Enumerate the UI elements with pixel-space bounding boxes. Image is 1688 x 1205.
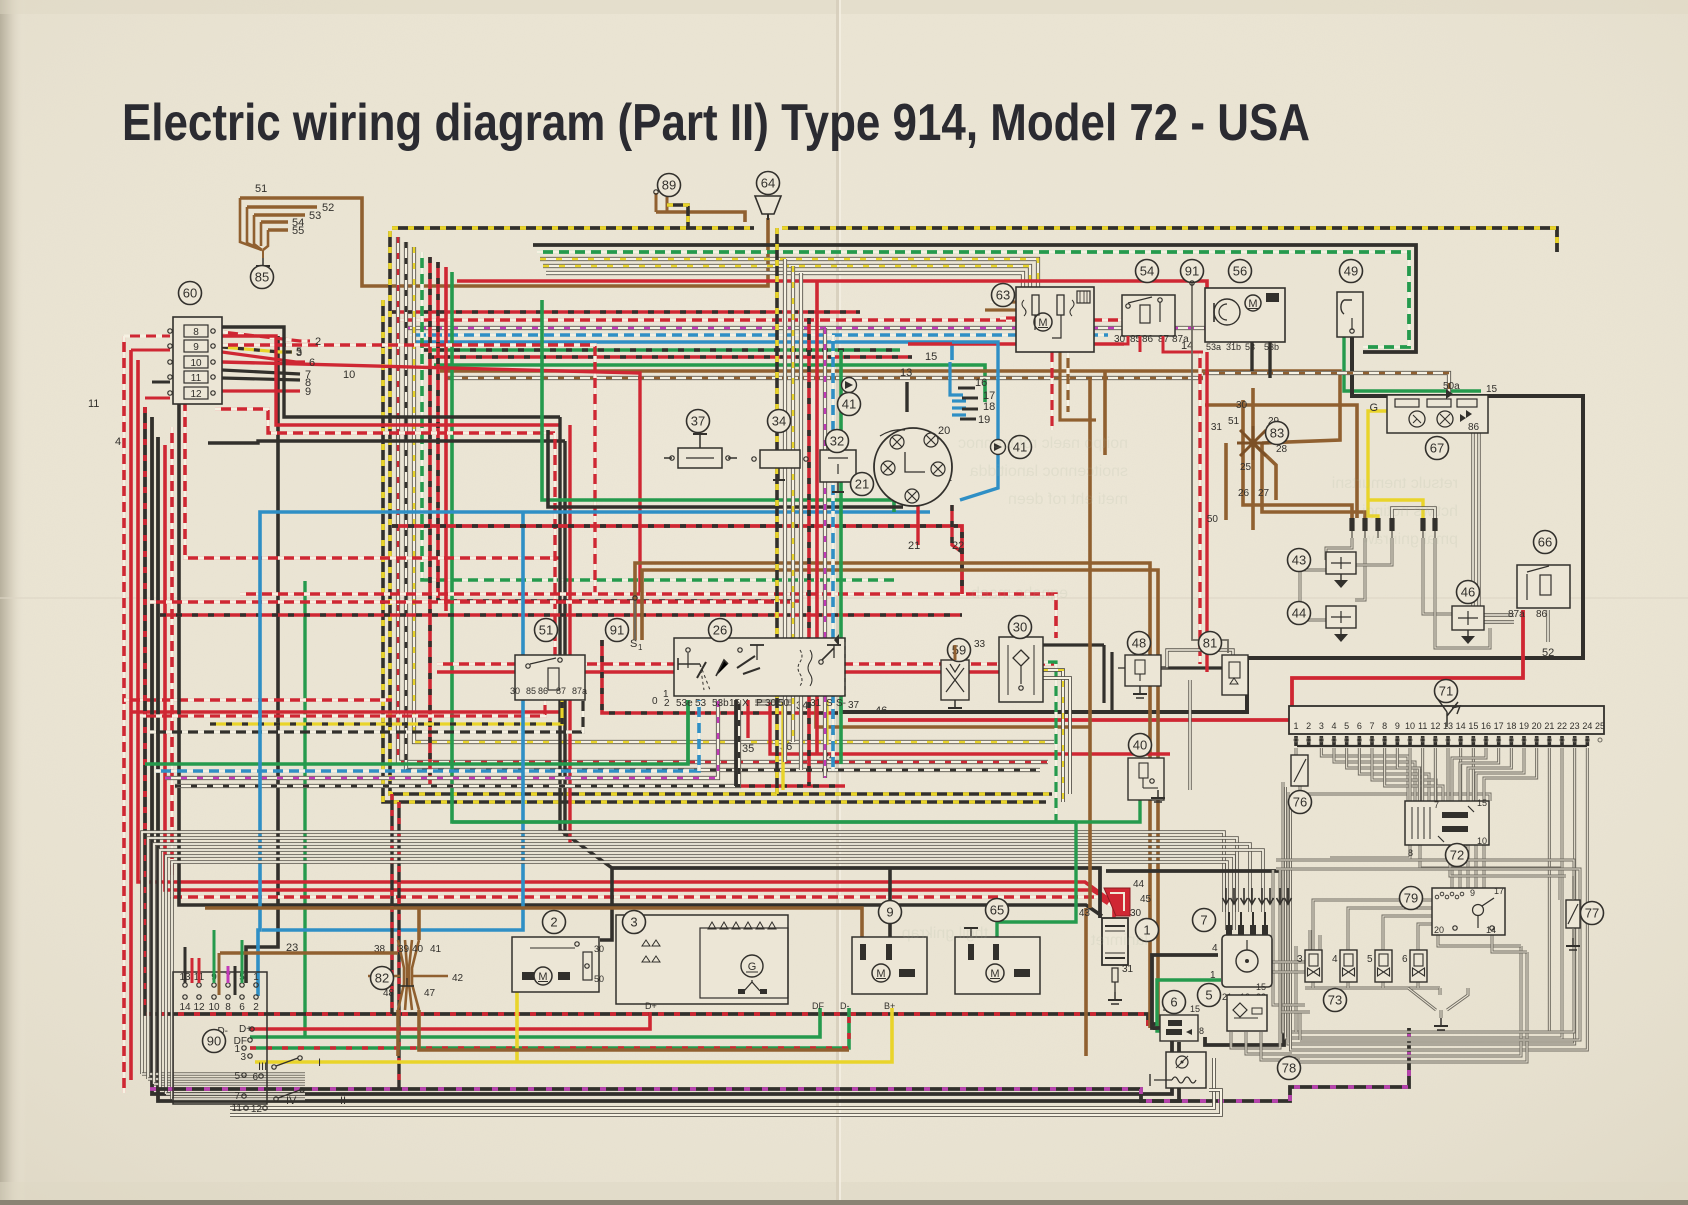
svg-text:15: 15 [1486,384,1498,395]
svg-text:12: 12 [193,1002,205,1013]
svg-text:37: 37 [691,414,705,429]
svg-text:31: 31 [810,698,822,709]
svg-text:86: 86 [1468,422,1480,433]
svg-text:7: 7 [1200,913,1207,928]
svg-text:6: 6 [1357,721,1362,731]
svg-text:25: 25 [1240,462,1252,473]
svg-text:51: 51 [255,183,267,195]
svg-text:30: 30 [594,944,604,954]
svg-text:DF: DF [812,1001,824,1011]
svg-text:53: 53 [309,210,321,222]
svg-text:6: 6 [252,1072,258,1083]
svg-text:67: 67 [1430,441,1444,456]
svg-text:22: 22 [1557,721,1567,731]
svg-text:31: 31 [1122,964,1134,975]
svg-text:28: 28 [1276,444,1288,455]
svg-text:5: 5 [234,1071,240,1082]
svg-text:18: 18 [1506,721,1516,731]
svg-text:26: 26 [1238,488,1250,499]
svg-text:64: 64 [761,176,775,191]
svg-text:53a: 53a [1206,342,1221,352]
svg-text:6: 6 [1402,954,1408,965]
svg-text:32: 32 [830,434,844,449]
svg-text:10: 10 [1405,721,1415,731]
svg-text:12: 12 [190,389,202,400]
svg-text:51: 51 [1228,416,1240,427]
svg-text:40: 40 [1133,738,1147,753]
svg-text:87a: 87a [1172,334,1189,345]
svg-text:5: 5 [1205,988,1212,1003]
svg-text:7: 7 [234,1091,240,1102]
svg-text:52: 52 [1542,647,1554,659]
svg-text:81: 81 [1203,636,1217,651]
svg-text:91: 91 [1185,264,1199,279]
svg-text:25: 25 [1595,721,1605,731]
svg-text:87a: 87a [572,686,587,696]
svg-text:0: 0 [652,696,658,707]
svg-text:9: 9 [193,342,199,353]
svg-text:50: 50 [1207,514,1219,525]
svg-text:3: 3 [1297,954,1303,965]
svg-text:91: 91 [610,623,624,638]
svg-text:2: 2 [550,915,557,930]
svg-text:3: 3 [630,915,637,930]
svg-text:19: 19 [978,414,990,426]
svg-text:6: 6 [309,357,315,369]
svg-text:56: 56 [1233,264,1247,279]
svg-text:53e: 53e [676,698,693,709]
svg-text:5: 5 [1367,954,1373,965]
svg-text:63: 63 [996,288,1010,303]
svg-text:11: 11 [191,373,202,384]
svg-text:86: 86 [538,686,548,696]
svg-text:hctiws notingi: hctiws notingi [1362,503,1458,520]
svg-text:G: G [1369,402,1378,414]
svg-text:30: 30 [765,698,777,709]
svg-text:D+: D+ [645,1001,657,1011]
svg-text:3: 3 [240,1052,246,1063]
svg-text:53b: 53b [712,698,729,709]
svg-text:8: 8 [193,327,199,338]
svg-text:11: 11 [232,1103,243,1114]
svg-text:Electric wiring diagram (Part: Electric wiring diagram (Part II) Type 9… [122,94,1310,152]
svg-text:14: 14 [1456,721,1466,731]
svg-text:8: 8 [1408,848,1413,858]
svg-text:4: 4 [1332,954,1338,965]
svg-text:34: 34 [772,414,786,429]
svg-text:4: 4 [1212,943,1218,954]
svg-text:15: 15 [1256,982,1266,992]
svg-text:10: 10 [1477,836,1487,846]
svg-text:49: 49 [1344,264,1358,279]
svg-text:11: 11 [88,398,99,410]
svg-text:S-: S- [836,698,846,709]
svg-text:27: 27 [1258,488,1270,499]
svg-text:51: 51 [539,623,553,638]
svg-text:53: 53 [695,698,707,709]
svg-text:39: 39 [398,944,410,955]
svg-text:35: 35 [742,743,754,755]
svg-text:23: 23 [1570,721,1580,731]
svg-text:15: 15 [925,351,937,363]
svg-text:B+: B+ [884,1001,895,1011]
svg-text:IV: IV [286,1095,297,1107]
svg-text:90: 90 [207,1034,221,1049]
svg-text:30: 30 [510,686,520,696]
svg-text:50: 50 [594,974,604,984]
svg-text:20: 20 [938,425,950,437]
svg-text:10: 10 [208,1002,220,1013]
svg-text:3: 3 [1319,721,1324,731]
svg-text:8: 8 [1382,721,1387,731]
svg-text:85: 85 [526,686,536,696]
svg-text:II: II [340,1095,346,1107]
svg-text:P: P [756,698,763,709]
svg-text:14: 14 [179,1002,191,1013]
svg-text:55: 55 [292,225,304,237]
svg-text:18: 18 [983,401,995,413]
svg-text:7: 7 [1369,721,1374,731]
svg-text:21: 21 [1544,721,1554,731]
svg-text:19: 19 [1519,721,1529,731]
svg-text:8: 8 [1199,1026,1204,1036]
svg-text:42: 42 [452,973,464,984]
svg-text:2: 2 [315,336,321,348]
svg-text:89: 89 [662,178,676,193]
svg-text:12: 12 [1430,721,1440,731]
svg-text:III: III [258,1061,267,1073]
svg-text:66: 66 [1538,535,1552,550]
svg-text:87a: 87a [1508,609,1525,620]
svg-text:retsulc tnemurtsni: retsulc tnemurtsni [1332,475,1458,492]
svg-text:30: 30 [1130,908,1142,919]
svg-text:G: G [748,961,757,973]
svg-text:87: 87 [556,686,566,696]
svg-text:2: 2 [253,1002,259,1013]
svg-text:1: 1 [663,689,669,700]
svg-text:1: 1 [1293,721,1298,731]
svg-text:13: 13 [900,367,912,379]
svg-text:41: 41 [842,397,856,412]
svg-text:50: 50 [778,698,790,709]
svg-text:21: 21 [855,477,869,492]
svg-text:17: 17 [1494,886,1504,896]
svg-text:15: 15 [1468,721,1478,731]
svg-text:73: 73 [1328,993,1342,1008]
svg-text:S: S [826,698,833,709]
svg-text:3: 3 [296,347,302,359]
svg-text:46: 46 [875,705,887,717]
svg-text:86: 86 [1536,609,1548,620]
svg-text:S: S [630,638,637,650]
svg-text:44: 44 [1133,879,1145,890]
svg-text:53: 53 [1245,342,1255,352]
svg-text:I: I [318,1057,321,1069]
svg-text:pmal gninraw: pmal gninraw [1362,531,1458,548]
svg-text:1: 1 [253,972,259,983]
svg-text:47: 47 [424,988,436,999]
svg-text:thgil gnikrap: thgil gnikrap [902,925,988,942]
svg-text:40: 40 [412,944,424,955]
svg-text:9: 9 [1470,888,1475,898]
svg-text:8: 8 [225,1002,231,1013]
svg-text:6: 6 [1170,995,1177,1010]
svg-text:85: 85 [255,270,269,285]
svg-text:1: 1 [638,643,643,652]
svg-text:meti eht rof deen: meti eht rof deen [1008,491,1128,508]
svg-text:21: 21 [908,540,920,552]
svg-text:D-: D- [840,1001,850,1011]
svg-text:11: 11 [1418,721,1427,731]
svg-text:15: 15 [1477,798,1487,808]
svg-text:snoitcennoc lanoitidda: snoitcennoc lanoitidda [970,463,1128,480]
svg-text:41: 41 [430,944,442,955]
svg-text:71: 71 [1439,684,1453,699]
svg-text:33: 33 [974,639,986,650]
svg-text:17: 17 [1494,721,1504,731]
svg-text:76: 76 [1293,795,1307,810]
svg-text:65: 65 [990,903,1004,918]
svg-text:4: 4 [1331,721,1336,731]
svg-text:54: 54 [1140,264,1154,279]
svg-text:78: 78 [1282,1061,1296,1076]
svg-text:43: 43 [1079,908,1091,919]
svg-text:22: 22 [952,540,964,552]
svg-text:15: 15 [729,698,741,709]
svg-text:44: 44 [1292,606,1306,621]
svg-text:37: 37 [848,700,860,711]
svg-text:46: 46 [1461,585,1475,600]
svg-text:30: 30 [1114,334,1126,345]
svg-text:30: 30 [1236,400,1248,411]
svg-text:16: 16 [975,377,987,389]
svg-text:30: 30 [1013,620,1027,635]
svg-text:9: 9 [1395,721,1400,731]
svg-text:5: 5 [1344,721,1349,731]
svg-text:26: 26 [713,623,727,638]
svg-text:72: 72 [1450,848,1464,863]
svg-text:9: 9 [886,905,893,920]
svg-text:31: 31 [1211,422,1223,433]
svg-text:9: 9 [305,386,311,398]
svg-text:12: 12 [251,1104,263,1115]
svg-text:1: 1 [1210,970,1216,981]
svg-text:50a: 50a [1443,381,1460,392]
svg-text:31b: 31b [1226,342,1241,352]
svg-text:4: 4 [115,436,121,448]
svg-text:lanimret: lanimret [1091,932,1148,949]
svg-text:52: 52 [322,202,334,214]
svg-text:10: 10 [343,369,355,381]
svg-text:2: 2 [1306,721,1311,731]
svg-text:1: 1 [1152,1022,1157,1032]
svg-text:83: 83 [1270,426,1284,441]
svg-text:6: 6 [239,1002,245,1013]
svg-text:82: 82 [375,971,389,986]
svg-text:77: 77 [1585,906,1599,921]
svg-text:10: 10 [190,358,202,369]
svg-text:43: 43 [1292,553,1306,568]
svg-text:noitpo naelc rof tcennoc: noitpo naelc rof tcennoc [958,435,1128,452]
svg-text:86: 86 [1142,334,1154,345]
svg-text:13: 13 [1443,721,1453,731]
svg-text:7: 7 [1434,800,1439,810]
svg-text:79: 79 [1404,891,1418,906]
svg-text:24: 24 [1582,721,1592,731]
svg-text:48: 48 [1132,636,1146,651]
svg-text:53b: 53b [1264,342,1279,352]
svg-text:16: 16 [1481,721,1491,731]
svg-text:X: X [742,698,749,709]
svg-text:45: 45 [1140,894,1152,905]
svg-text:20: 20 [1434,925,1444,935]
svg-text:20: 20 [1532,721,1542,731]
svg-text:60: 60 [183,286,197,301]
svg-text:egnahc maeb: egnahc maeb [971,585,1068,602]
svg-text:14: 14 [1486,925,1496,935]
svg-text:15: 15 [1190,1004,1200,1014]
